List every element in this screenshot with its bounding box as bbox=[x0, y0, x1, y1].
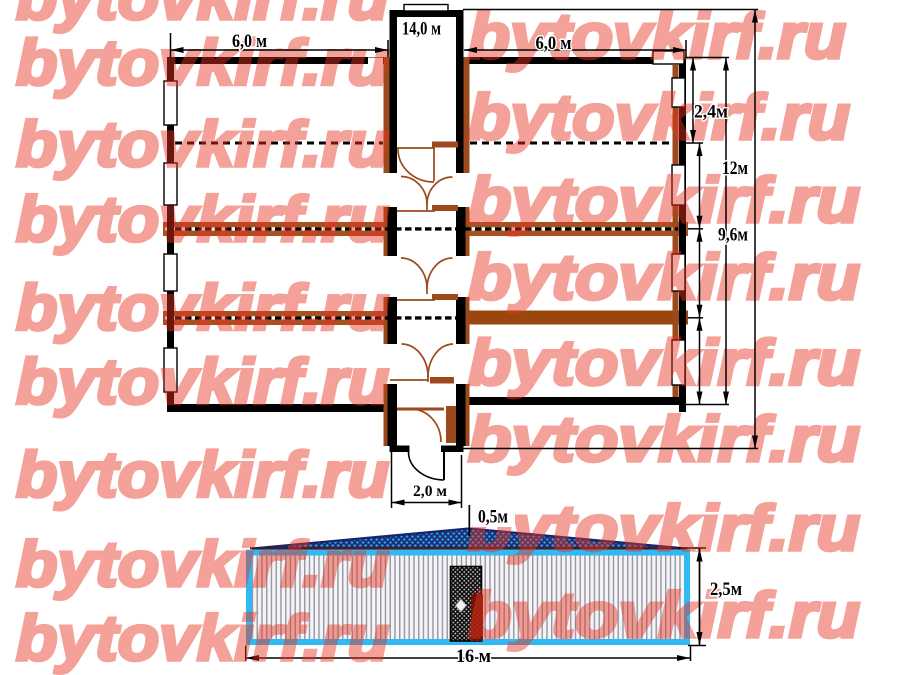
svg-text:12м: 12м bbox=[722, 158, 748, 179]
svg-text:bytovkirf.ru: bytovkirf.ru bbox=[468, 164, 860, 236]
svg-text:bytovkirf.ru: bytovkirf.ru bbox=[16, 183, 389, 255]
svg-text:bytovkirf.ru: bytovkirf.ru bbox=[16, 108, 389, 180]
svg-text:bytovkirf.ru: bytovkirf.ru bbox=[468, 0, 846, 72]
svg-text:bytovkirf.ru: bytovkirf.ru bbox=[468, 327, 860, 399]
svg-text:bytovkirf.ru: bytovkirf.ru bbox=[16, 27, 389, 99]
svg-text:bytovkirf.ru: bytovkirf.ru bbox=[16, 346, 389, 418]
svg-text:bytovkirf.ru: bytovkirf.ru bbox=[468, 81, 850, 153]
svg-text:6,0 м: 6,0 м bbox=[232, 31, 267, 52]
svg-text:6,0 м: 6,0 м bbox=[536, 33, 572, 54]
svg-text:bytovkirf.ru: bytovkirf.ru bbox=[16, 439, 389, 511]
svg-text:bytovkirf.ru: bytovkirf.ru bbox=[16, 272, 389, 344]
svg-text:bytovkirf.ru: bytovkirf.ru bbox=[16, 528, 389, 600]
svg-text:bytovkirf.ru: bytovkirf.ru bbox=[468, 241, 860, 313]
svg-text:bytovkirf.ru: bytovkirf.ru bbox=[468, 492, 860, 564]
svg-text:2,5м: 2,5м bbox=[710, 579, 742, 600]
svg-text:16 м: 16 м bbox=[456, 646, 491, 667]
svg-text:bytovkirf.ru: bytovkirf.ru bbox=[468, 579, 860, 651]
svg-text:bytovkirf.ru: bytovkirf.ru bbox=[468, 403, 860, 475]
svg-text:9,6м: 9,6м bbox=[718, 225, 748, 246]
svg-text:14,0 м: 14,0 м bbox=[402, 19, 441, 40]
svg-text:0,5м: 0,5м bbox=[478, 507, 508, 528]
svg-text:bytovkirf.ru: bytovkirf.ru bbox=[16, 602, 389, 674]
svg-text:2,4м: 2,4м bbox=[694, 102, 728, 123]
svg-text:2,0 м: 2,0 м bbox=[413, 483, 447, 500]
